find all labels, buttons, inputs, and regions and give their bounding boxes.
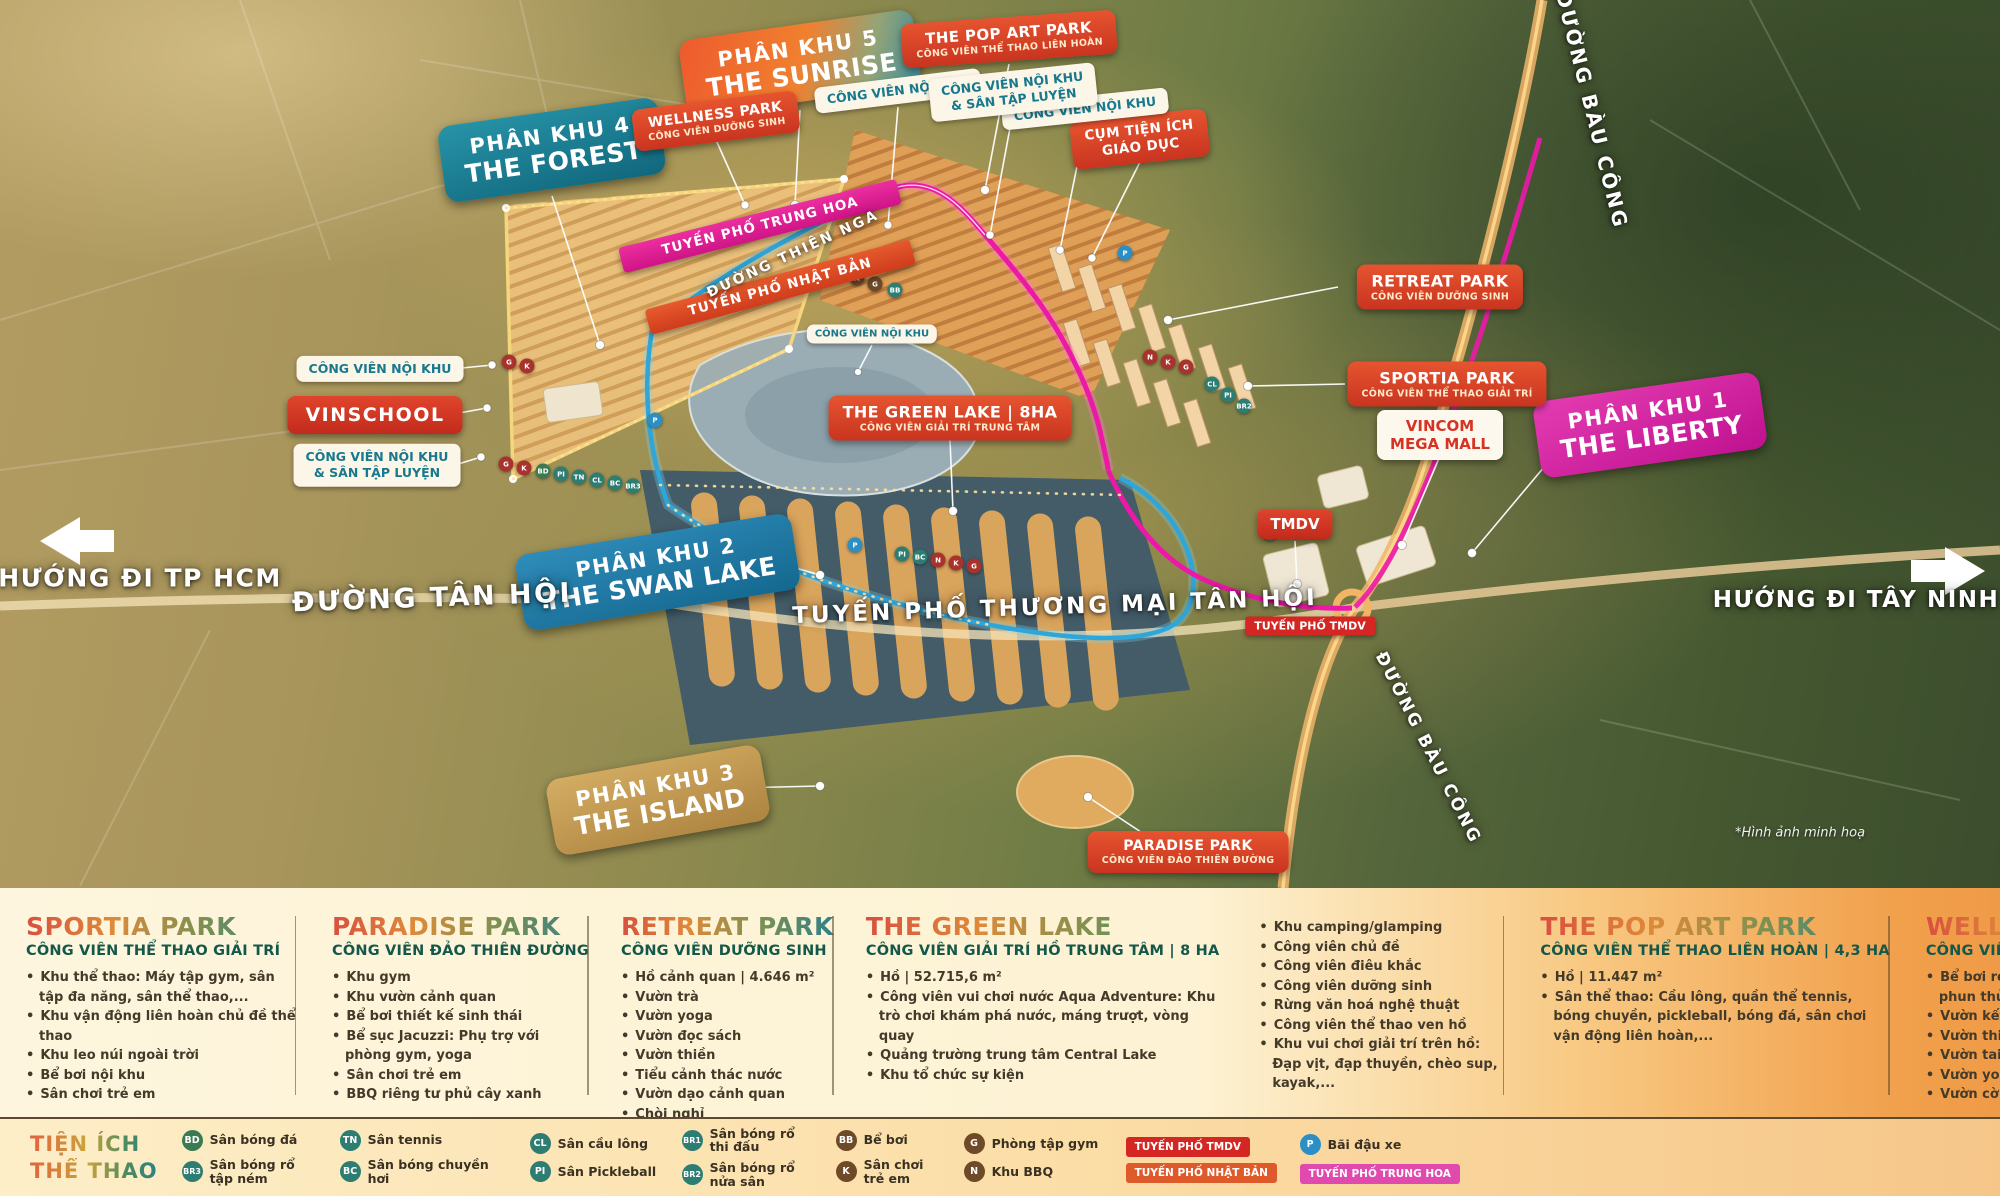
legend-title: THE POP ART PARK <box>1540 912 1889 941</box>
legend-item: Vườn đọc sách <box>621 1027 834 1047</box>
amenity-group-basketball-courts: BR1Sân bóng rổ thi đấu BR2Sân bóng rổ nử… <box>682 1127 812 1189</box>
parks-legend-panel: SPORTIA PARK CÔNG VIÊN THỂ THAO GIẢI TRÍ… <box>0 888 2000 1117</box>
legend-green-lake: THE GREEN LAKE CÔNG VIÊN GIẢI TRÍ HỒ TRU… <box>834 912 1220 1117</box>
amenity-label: Sân bóng đá <box>210 1133 298 1147</box>
amenities-legend-title: TIỆN ÍCH THỂ THAO <box>30 1131 158 1184</box>
sign-cong-vien-noi-khu: CÔNG VIÊN NỘI KHU <box>807 325 937 344</box>
legend-item: Khu thể thao: Máy tập gym, sân tập đa nă… <box>26 968 296 1007</box>
legend-retreat-park: RETREAT PARK CÔNG VIÊN DƯỠNG SINH Hồ cản… <box>589 912 834 1117</box>
park-sign-title: RETREAT PARK <box>1371 272 1509 291</box>
map-badge-kids: K <box>517 461 532 476</box>
legend-item: Khu vườn cảnh quan <box>332 988 589 1008</box>
street-badge-nhat-ban: TUYẾN PHỐ NHẬT BẢN <box>1126 1163 1277 1183</box>
legend-item: Vườn thiền <box>621 1046 834 1066</box>
legend-item: Bể sục Jacuzzi: Phụ trợ với phòng gym, y… <box>332 1027 589 1066</box>
map-badge-gym: G <box>499 457 514 472</box>
map-badge-parking: P <box>648 413 663 428</box>
legend-subtitle: CÔNG VIÊN ĐẢO THIÊN ĐƯỜNG <box>332 943 589 959</box>
legend-paradise-park: PARADISE PARK CÔNG VIÊN ĐẢO THIÊN ĐƯỜNG … <box>296 912 589 1117</box>
sign-line: CÔNG VIÊN NỘI KHU <box>306 449 449 465</box>
street-badge-trung-hoa: TUYẾN PHỐ TRUNG HOA <box>1300 1164 1460 1184</box>
badge-tuyen-pho-tmdv: TUYẾN PHỐ TMDV <box>1245 617 1375 636</box>
amenity-icon-p: P <box>1300 1134 1321 1155</box>
legend-item: Vườn thiền <box>1926 1027 2000 1047</box>
park-sign-title: PARADISE PARK <box>1102 838 1275 854</box>
legend-item: Công viên điêu khắc <box>1259 957 1504 977</box>
legend-item: Khu tổ chức sự kiện <box>866 1066 1220 1086</box>
legend-item: Vườn trà <box>621 988 834 1008</box>
amenity-icon-bb: BB <box>836 1130 857 1151</box>
paradise-island <box>1017 756 1133 828</box>
sign-vinschool: VINSCHOOL <box>287 396 462 434</box>
sign-paradise-park: PARADISE PARK CÔNG VIÊN ĐẢO THIÊN ĐƯỜNG <box>1088 831 1289 873</box>
sign-vincom-mega-mall: VINCOM MEGA MALL <box>1377 410 1503 460</box>
map-badge-gym: G <box>868 277 883 292</box>
map-badge-kids: K <box>520 359 535 374</box>
map-badge-gym: G <box>502 355 517 370</box>
amenities-title-line: THỂ THAO <box>30 1158 158 1184</box>
map-badge-football: BD <box>536 464 551 479</box>
street-badge-group-1: TUYẾN PHỐ TMDV TUYẾN PHỐ NHẬT BẢN <box>1126 1135 1276 1180</box>
legend-subtitle: CÔNG VIÊN DƯỠNG SINH <box>621 943 834 959</box>
amenity-group-football-basketball: BDSân bóng đá BR3Sân bóng rổ tập ném <box>182 1130 316 1186</box>
legend-sportia-park: SPORTIA PARK CÔNG VIÊN THỂ THAO GIẢI TRÍ… <box>26 912 296 1117</box>
legend-item: Công viên chủ đề <box>1259 938 1504 958</box>
amenities-legend-bar: TIỆN ÍCH THỂ THAO BDSân bóng đá BR3Sân b… <box>0 1117 2000 1196</box>
amenity-icon-bd: BD <box>182 1130 203 1151</box>
amenity-icon-n: N <box>964 1161 985 1182</box>
legend-title: SPORTIA PARK <box>26 912 296 941</box>
map-badge-parking: P <box>1118 246 1133 261</box>
map-badge-badminton: CL <box>1205 377 1220 392</box>
map-badge-volleyball: BC <box>913 550 928 565</box>
direction-label-hcm: HƯỚNG ĐI TP HCM <box>0 564 282 593</box>
legend-subtitle: CÔNG VIÊN THỂ THAO GIẢI TRÍ <box>26 943 296 959</box>
legend-green-lake-continued: Khu camping/glamping Công viên chủ đề Cô… <box>1219 912 1504 1117</box>
legend-item: Khu vui chơi giải trí trên hồ: Đạp vịt, … <box>1259 1035 1504 1094</box>
sign-retreat-park: RETREAT PARK CÔNG VIÊN DƯỠNG SINH <box>1357 265 1523 310</box>
masterplan-poster: N K G BB G K G K BD PI TN CL BC BR3 PI B… <box>0 0 2000 1196</box>
sign-green-lake: THE GREEN LAKE | 8HA CÔNG VIÊN GIẢI TRÍ … <box>829 396 1072 441</box>
legend-title: THE GREEN LAKE <box>866 912 1220 941</box>
amenity-group-pool-kids: BBBể bơi KSân chơi trẻ em <box>836 1130 940 1186</box>
map-badge-basketball: BR3 <box>626 479 641 494</box>
amenity-icon-br1: BR1 <box>682 1130 703 1151</box>
sign-tmdv: TMDV <box>1257 509 1332 539</box>
amenity-icon-k: K <box>836 1161 857 1182</box>
legend-subtitle: CÔNG VIÊN GIẢI TRÍ HỒ TRUNG TÂM | 8 HA <box>866 943 1220 959</box>
legend-item: Tiểu cảnh thác nước <box>621 1066 834 1086</box>
sign-sportia-park: SPORTIA PARK CÔNG VIÊN THỂ THAO GIẢI TRÍ <box>1347 362 1546 407</box>
amenity-icon-cl: CL <box>530 1133 551 1154</box>
amenity-label: Bể bơi <box>864 1133 908 1147</box>
map-badge-pickleball: PI <box>895 547 910 562</box>
sign-cong-vien-noi-khu: CÔNG VIÊN NỘI KHU <box>297 356 464 382</box>
legend-subtitle: CÔNG VIÊN THỂ THAO LIÊN HOÀN | 4,3 HA <box>1540 943 1889 959</box>
legend-item: Quảng trường trung tâm Central Lake <box>866 1046 1220 1066</box>
map-badge-gym: G <box>967 559 982 574</box>
direction-label-tay-ninh: HƯỚNG ĐI TÂY NINH <box>1713 587 2000 613</box>
legend-item: Công viên dưỡng sinh <box>1259 977 1504 997</box>
legend-title: PARADISE PARK <box>332 912 589 941</box>
legend-wellness-park: WELLNESS PARK CÔNG VIÊN SINH THÁI | 3,65… <box>1890 912 2000 1117</box>
legend-item: Hồ | 11.447 m² <box>1540 968 1889 988</box>
amenity-icon-bc: BC <box>340 1161 361 1182</box>
amenity-label: Sân chơi trẻ em <box>864 1158 940 1186</box>
map-badge-pickleball: PI <box>1221 388 1236 403</box>
map-badge-basketball: BR2 <box>1237 399 1252 414</box>
legend-item: Bể bơi resort dưỡng sinh: Vòi phun thủy … <box>1926 968 2000 1007</box>
park-sign-subtitle: CÔNG VIÊN GIẢI TRÍ TRUNG TÂM <box>843 423 1058 434</box>
aerial-masterplan-map: N K G BB G K G K BD PI TN CL BC BR3 PI B… <box>0 0 2000 888</box>
legend-item: Hồ | 52.715,6 m² <box>866 968 1220 988</box>
legend-pop-art-park: THE POP ART PARK CÔNG VIÊN THỂ THAO LIÊN… <box>1504 912 1889 1117</box>
legend-item: Rừng văn hoá nghệ thuật <box>1259 996 1504 1016</box>
legend-item: Vườn taichi <box>1926 1046 2000 1066</box>
map-badge-badminton: CL <box>590 473 605 488</box>
map-badge-kids: K <box>949 556 964 571</box>
parking-and-trung-hoa-group: PBãi đậu xe TUYẾN PHỐ TRUNG HOA <box>1300 1134 1490 1181</box>
legend-item: Vườn kết nối cộng đồng <box>1926 1007 2000 1027</box>
legend-item: Sân chơi trẻ em <box>26 1085 296 1105</box>
amenity-label: Sân bóng chuyền hơi <box>368 1158 506 1186</box>
map-badge-tennis: TN <box>572 470 587 485</box>
map-badge-pool: BB <box>888 283 903 298</box>
legend-item: Vườn cờ <box>1926 1085 2000 1105</box>
park-sign-title: SPORTIA PARK <box>1361 369 1532 388</box>
map-badge-bbq: N <box>1143 350 1158 365</box>
legend-item: Khu vận động liên hoàn chủ đề thể thao <box>26 1007 296 1046</box>
park-sign-subtitle: CÔNG VIÊN ĐẢO THIÊN ĐƯỜNG <box>1102 855 1275 866</box>
legend-item: Sân chơi trẻ em <box>332 1066 589 1086</box>
map-badge-gym: G <box>1179 360 1194 375</box>
amenity-icon-tn: TN <box>340 1130 361 1151</box>
legend-item: Khu gym <box>332 968 589 988</box>
map-badge-kids: K <box>1161 355 1176 370</box>
park-sign-subtitle: CÔNG VIÊN THỂ THAO GIẢI TRÍ <box>1361 389 1532 400</box>
park-sign-title: THE GREEN LAKE | 8HA <box>843 403 1058 422</box>
amenity-group-tennis-volleyball: TNSân tennis BCSân bóng chuyền hơi <box>340 1130 506 1186</box>
amenity-label: Khu BBQ <box>992 1165 1054 1179</box>
map-badge-pickleball: PI <box>554 467 569 482</box>
legend-item: Công viên vui chơi nước Aqua Adventure: … <box>866 988 1220 1047</box>
park-sign-subtitle: CÔNG VIÊN DƯỠNG SINH <box>1371 292 1509 303</box>
legend-item: Bể bơi nội khu <box>26 1066 296 1086</box>
amenity-label: Sân bóng rổ nửa sân <box>710 1161 812 1189</box>
legend-item: Sân thể thao: Cầu lông, quần thể tennis,… <box>1540 988 1889 1047</box>
legend-item: BBQ riêng tư phủ cây xanh <box>332 1085 589 1105</box>
legend-title: RETREAT PARK <box>621 912 834 941</box>
legend-item: Khu camping/glamping <box>1259 918 1504 938</box>
amenity-label: Sân bóng rổ thi đấu <box>710 1127 812 1155</box>
legend-item: Vườn dạo cảnh quan <box>621 1085 834 1105</box>
map-badge-bbq: N <box>931 553 946 568</box>
legend-item: Khu leo núi ngoài trời <box>26 1046 296 1066</box>
sign-line: MEGA MALL <box>1390 435 1490 453</box>
sign-line: VINCOM <box>1390 417 1490 435</box>
sign-noi-khu-san-tap-luyen: CÔNG VIÊN NỘI KHU & SÂN TẬP LUYỆN <box>294 444 461 487</box>
map-badge-volleyball: BC <box>608 476 623 491</box>
legend-item: Vườn yoga <box>621 1007 834 1027</box>
legend-item: Bể bơi thiết kế sinh thái <box>332 1007 589 1027</box>
amenity-label: Sân Pickleball <box>558 1165 657 1179</box>
street-badge-tmdv: TUYẾN PHỐ TMDV <box>1126 1137 1250 1157</box>
map-badge-parking: P <box>848 538 863 553</box>
amenity-label: Sân cầu lông <box>558 1137 649 1151</box>
amenity-icon-pi: PI <box>530 1161 551 1182</box>
amenity-label: Sân tennis <box>368 1133 443 1147</box>
amenity-icon-br3: BR3 <box>182 1161 203 1182</box>
amenity-label: Sân bóng rổ tập ném <box>210 1158 316 1186</box>
legend-item: Hồ cảnh quan | 4.646 m² <box>621 968 834 988</box>
amenity-icon-g: G <box>964 1133 985 1154</box>
amenities-title-line: TIỆN ÍCH <box>30 1131 158 1157</box>
sign-line: & SÂN TẬP LUYỆN <box>306 465 449 481</box>
legend-item: Vườn yoga <box>1926 1066 2000 1086</box>
illustration-note: *Hình ảnh minh hoạ <box>1735 826 1865 841</box>
amenity-icon-br2: BR2 <box>682 1164 703 1185</box>
amenity-group-badminton-pickleball: CLSân cầu lông PISân Pickleball <box>530 1133 658 1182</box>
legend-item: Công viên thể thao ven hồ <box>1259 1016 1504 1036</box>
amenity-label: Bãi đậu xe <box>1328 1138 1402 1152</box>
legend-subtitle: CÔNG VIÊN SINH THÁI | 3,65 HA <box>1926 943 2000 959</box>
amenity-group-gym-bbq: GPhòng tập gym NKhu BBQ <box>964 1133 1102 1182</box>
legend-title: WELLNESS PARK <box>1926 912 2000 941</box>
amenity-label: Phòng tập gym <box>992 1137 1099 1151</box>
